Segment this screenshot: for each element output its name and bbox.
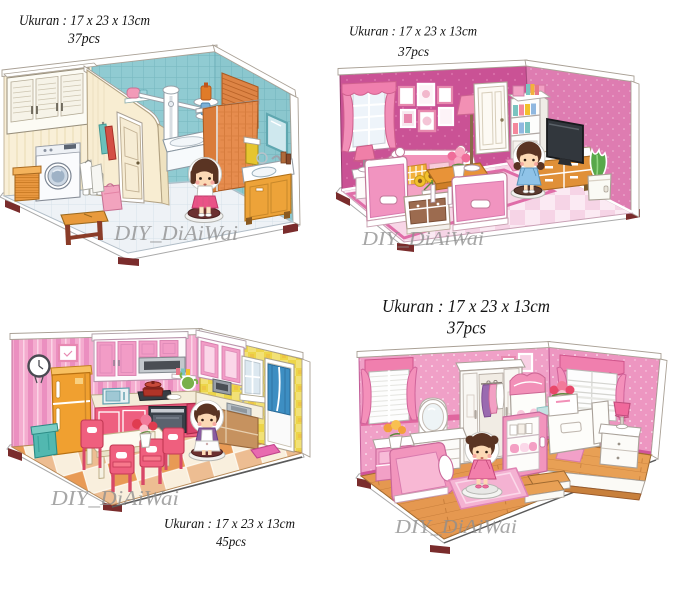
svg-text:DIY_DiAiWai: DIY_DiAiWai (113, 221, 238, 245)
svg-text:37pcs: 37pcs (446, 318, 486, 338)
svg-text:Ukuran : 17 x 23 x 13cm: Ukuran : 17 x 23 x 13cm (349, 24, 477, 39)
svg-text:45pcs: 45pcs (216, 535, 246, 550)
svg-text:DIY_DiAiWai: DIY_DiAiWai (394, 516, 517, 538)
svg-text:Ukuran : 17 x 23 x 13cm: Ukuran : 17 x 23 x 13cm (164, 517, 295, 532)
svg-text:DIY_DiAiWai: DIY_DiAiWai (50, 486, 179, 510)
svg-text:37pcs: 37pcs (397, 44, 429, 59)
svg-text:DIY_DiAiWai: DIY_DiAiWai (361, 228, 484, 250)
svg-text:Ukuran : 17 x 23 x 13cm: Ukuran : 17 x 23 x 13cm (382, 296, 550, 316)
svg-text:37pcs: 37pcs (67, 31, 100, 47)
svg-text:Ukuran : 17 x 23 x 13cm: Ukuran : 17 x 23 x 13cm (19, 13, 150, 29)
